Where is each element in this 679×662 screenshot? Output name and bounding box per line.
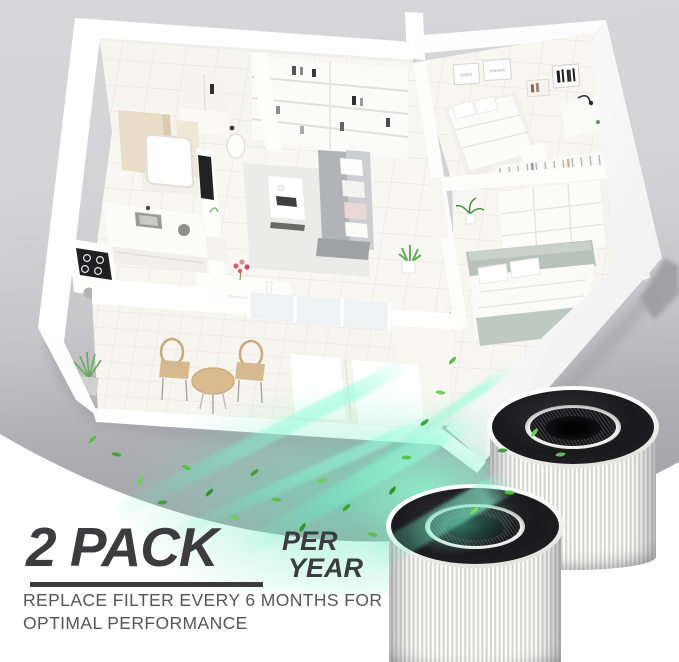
patio-table (192, 368, 234, 394)
product-hero-image: SWEET DREAMS (0, 0, 679, 662)
headline-underline (30, 582, 263, 587)
per-year-label: PER YEAR (282, 528, 363, 582)
per-line2: YEAR (288, 555, 363, 582)
replacement-note: REPLACE FILTER EVERY 6 MONTHS FOR OPTIMA… (23, 589, 382, 636)
living-room (243, 150, 374, 277)
filter-unit-front (386, 484, 564, 662)
per-line1: PER (282, 528, 363, 555)
filter-core-hole (545, 416, 601, 440)
pack-headline: 2 PACK (26, 520, 218, 575)
replacement-note-line2: OPTIMAL PERFORMANCE (23, 612, 382, 635)
replacement-note-line1: REPLACE FILTER EVERY 6 MONTHS FOR (23, 589, 382, 612)
filter-core-hole (446, 515, 504, 540)
